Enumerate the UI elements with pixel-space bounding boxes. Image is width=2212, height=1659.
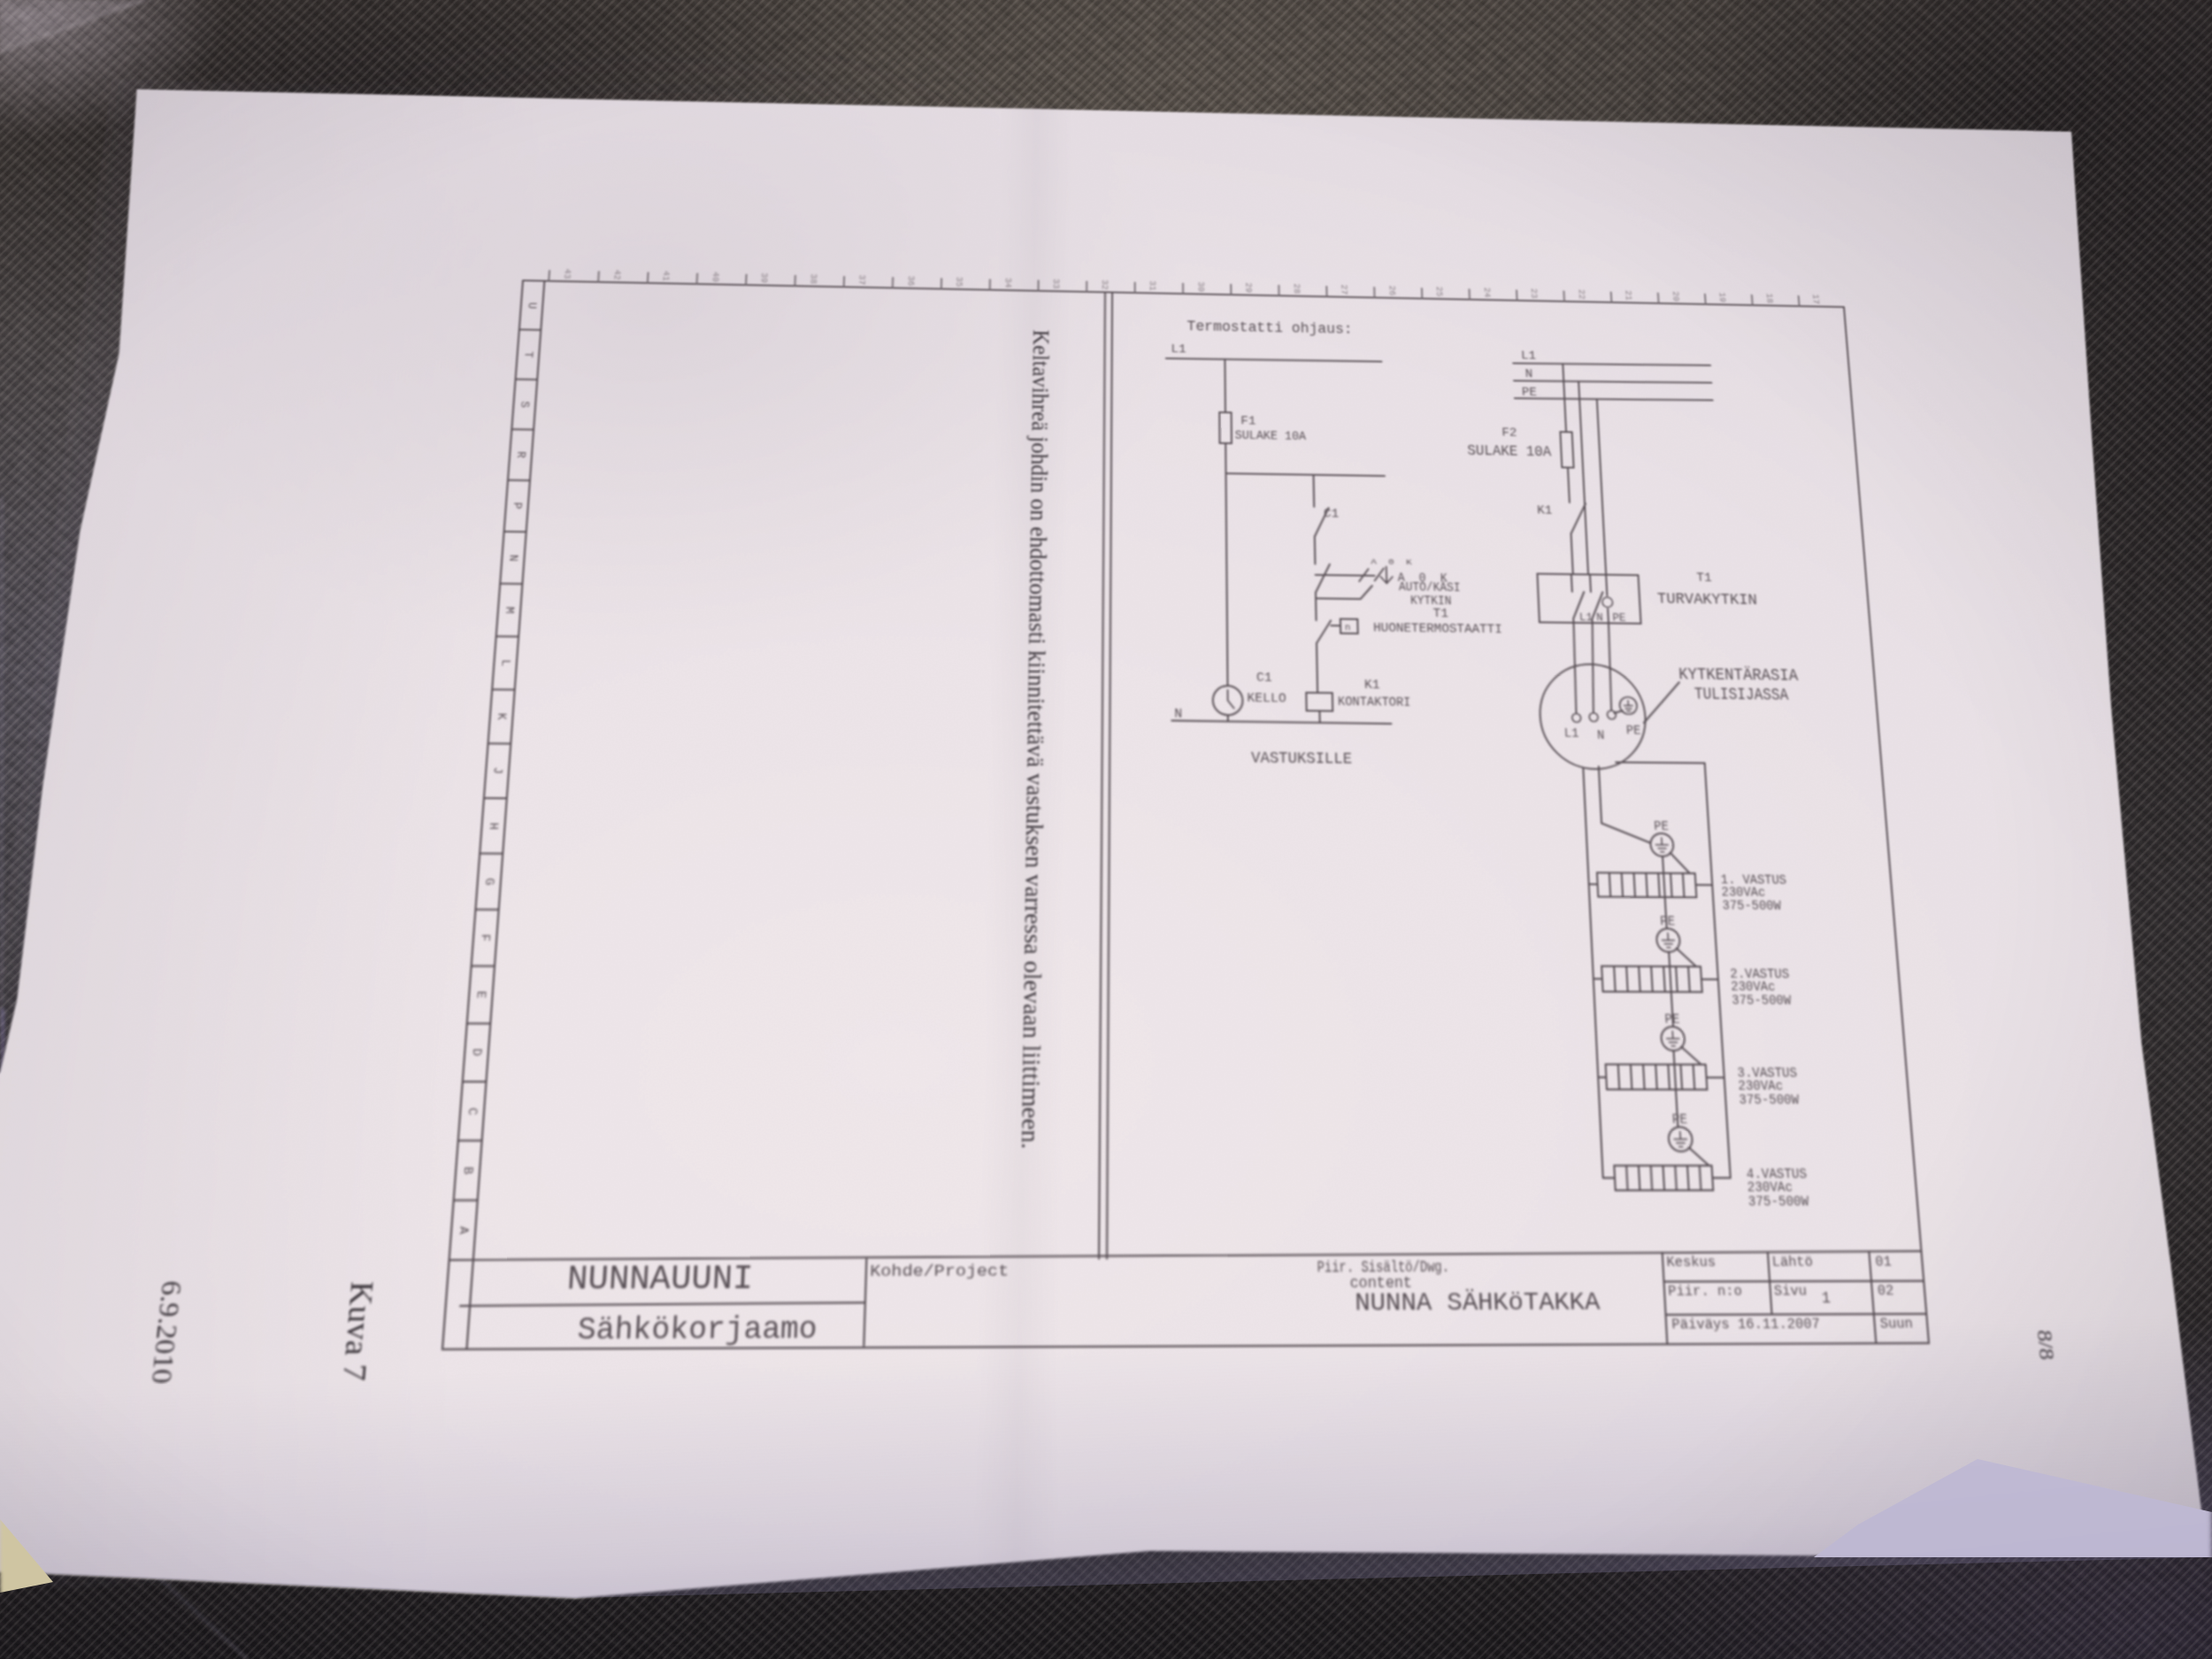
svg-text:02: 02 [1877, 1283, 1894, 1300]
svg-text:21: 21 [1622, 290, 1633, 301]
svg-text:F: F [478, 934, 492, 942]
svg-text:C1: C1 [1324, 507, 1340, 521]
svg-text:TULISIJASSA: TULISIJASSA [1694, 684, 1789, 705]
svg-text:43: 43 [561, 268, 572, 279]
svg-text:39: 39 [757, 273, 769, 283]
svg-text:29: 29 [1242, 282, 1253, 293]
svg-text:Kohde/Project: Kohde/Project [870, 1264, 1009, 1281]
svg-text:19: 19 [1716, 292, 1727, 303]
svg-text:PE: PE [1626, 724, 1641, 738]
svg-text:A 0 K: A 0 K [1371, 557, 1413, 567]
svg-text:PE: PE [1660, 914, 1676, 928]
svg-text:PE: PE [1612, 611, 1626, 624]
svg-text:230VAc: 230VAc [1731, 979, 1776, 995]
svg-text:22: 22 [1575, 289, 1586, 300]
svg-text:23: 23 [1528, 288, 1539, 299]
svg-text:AUTO/KÄSI: AUTO/KÄSI [1399, 579, 1461, 595]
svg-text:PE: PE [1664, 1012, 1680, 1027]
svg-text:SULAKE 10A: SULAKE 10A [1467, 443, 1552, 461]
svg-text:Sivu: Sivu [1773, 1284, 1807, 1301]
svg-text:8/8: 8/8 [2032, 1330, 2060, 1360]
svg-text:C: C [465, 1108, 480, 1116]
svg-text:T1: T1 [1432, 607, 1448, 622]
svg-text:375-500W: 375-500W [1722, 899, 1782, 914]
svg-text:A: A [456, 1226, 471, 1235]
svg-text:VASTUKSILLE: VASTUKSILLE [1251, 750, 1352, 769]
svg-text:L: L [498, 659, 512, 666]
svg-text:230VAc: 230VAc [1721, 886, 1766, 900]
svg-text:N: N [1597, 728, 1605, 742]
svg-text:Termostatti ohjaus:: Termostatti ohjaus: [1187, 319, 1352, 339]
svg-text:T: T [521, 351, 534, 358]
svg-text:L1: L1 [1579, 611, 1594, 624]
svg-text:U: U [525, 302, 538, 309]
svg-text:K1: K1 [1537, 503, 1553, 518]
svg-text:375-500W: 375-500W [1747, 1194, 1809, 1210]
svg-text:F2: F2 [1502, 426, 1517, 441]
svg-text:n: n [1345, 623, 1351, 634]
svg-text:16.11.2007: 16.11.2007 [1737, 1317, 1820, 1333]
svg-text:TURVAKYTKIN: TURVAKYTKIN [1657, 591, 1758, 610]
svg-text:M: M [502, 607, 516, 614]
svg-text:Päiväys: Päiväys [1671, 1317, 1730, 1333]
svg-text:27: 27 [1338, 284, 1348, 295]
svg-text:PE: PE [1671, 1112, 1687, 1127]
svg-text:30: 30 [1194, 281, 1205, 292]
svg-text:N: N [1174, 707, 1182, 722]
svg-text:N: N [1596, 611, 1603, 624]
svg-text:Lähtö: Lähtö [1771, 1255, 1813, 1271]
svg-text:38: 38 [807, 273, 818, 284]
svg-text:Piir. Sisältö/Dwg.: Piir. Sisältö/Dwg. [1317, 1260, 1449, 1277]
svg-text:28: 28 [1290, 283, 1301, 294]
svg-text:PE: PE [1522, 386, 1538, 400]
svg-text:D: D [469, 1048, 484, 1056]
svg-text:32: 32 [1098, 280, 1109, 290]
svg-text:Sähkökorjaamo: Sähkökorjaamo [576, 1311, 818, 1348]
svg-text:37: 37 [856, 274, 867, 285]
svg-text:PE: PE [1654, 819, 1670, 833]
svg-text:KELLO: KELLO [1247, 691, 1286, 706]
svg-text:Suun: Suun [1879, 1316, 1913, 1333]
svg-text:NUNNAUUNI: NUNNAUUNI [565, 1259, 754, 1300]
svg-text:N: N [506, 555, 520, 562]
svg-text:230VAc: 230VAc [1738, 1079, 1784, 1094]
svg-text:17: 17 [1809, 294, 1821, 304]
svg-text:K1: K1 [1364, 678, 1380, 693]
svg-text:L1: L1 [1564, 726, 1579, 741]
svg-text:K: K [494, 713, 508, 721]
svg-text:Piir. n:o: Piir. n:o [1668, 1284, 1743, 1301]
svg-text:B: B [460, 1166, 475, 1174]
svg-text:HUONETERMOSTAATTI: HUONETERMOSTAATTI [1373, 621, 1502, 637]
svg-text:25: 25 [1433, 287, 1444, 297]
svg-text:P: P [510, 502, 524, 509]
svg-text:KYTKENTÄRASIA: KYTKENTÄRASIA [1678, 664, 1800, 686]
svg-text:H: H [486, 822, 500, 829]
svg-text:24: 24 [1480, 288, 1491, 298]
svg-text:31: 31 [1147, 280, 1157, 291]
svg-text:T1: T1 [1696, 572, 1712, 586]
svg-text:C1: C1 [1256, 671, 1272, 686]
svg-text:NUNNA SÄHKöTAKKA: NUNNA SÄHKöTAKKA [1355, 1288, 1601, 1318]
svg-text:F1: F1 [1240, 414, 1256, 428]
svg-text:R: R [514, 451, 527, 458]
svg-text:33: 33 [1050, 279, 1061, 289]
svg-text:E: E [473, 991, 488, 999]
svg-text:1: 1 [1821, 1291, 1831, 1308]
svg-text:Keskus: Keskus [1666, 1255, 1717, 1271]
svg-text:KONTAKTORI: KONTAKTORI [1338, 695, 1411, 710]
svg-text:230VAc: 230VAc [1747, 1180, 1793, 1195]
svg-text:375-500W: 375-500W [1739, 1093, 1800, 1108]
svg-text:L1: L1 [1521, 349, 1537, 364]
svg-text:36: 36 [904, 275, 916, 286]
svg-text:G: G [481, 878, 495, 885]
svg-text:SULAKE 10A: SULAKE 10A [1235, 429, 1307, 444]
svg-text:35: 35 [953, 277, 964, 288]
svg-text:L1: L1 [1171, 342, 1186, 357]
svg-text:J: J [490, 767, 504, 774]
svg-text:42: 42 [611, 270, 622, 280]
svg-text:01: 01 [1875, 1255, 1893, 1271]
svg-text:34: 34 [1002, 278, 1012, 288]
svg-text:N: N [1525, 367, 1532, 381]
svg-text:41: 41 [659, 271, 671, 281]
svg-text:375-500W: 375-500W [1732, 994, 1792, 1009]
svg-text:40: 40 [709, 272, 720, 282]
svg-text:S: S [518, 401, 531, 408]
svg-text:20: 20 [1669, 291, 1680, 302]
svg-text:18: 18 [1763, 293, 1774, 303]
svg-text:26: 26 [1386, 285, 1396, 296]
